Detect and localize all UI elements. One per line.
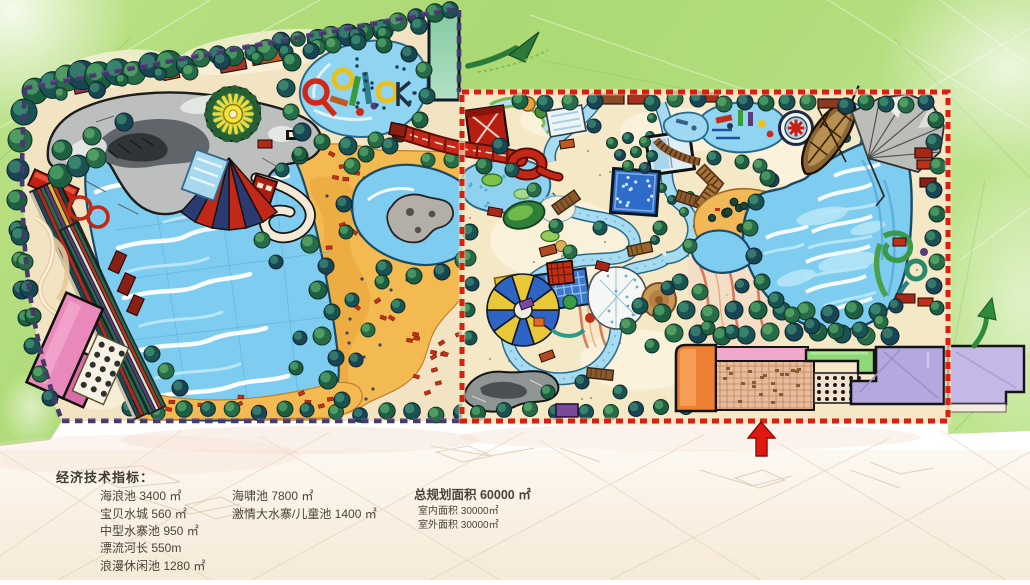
svg-text:漂流河长 550m: 漂流河长 550m [100, 541, 181, 555]
svg-text:浪漫休闲池 1280 ㎡: 浪漫休闲池 1280 ㎡ [100, 558, 205, 573]
svg-text:室外面积 30000㎡: 室外面积 30000㎡ [418, 518, 499, 531]
svg-text:海啸池 7800 ㎡: 海啸池 7800 ㎡ [232, 488, 313, 503]
svg-text:中型水寨池 950 ㎡: 中型水寨池 950 ㎡ [100, 523, 199, 538]
svg-text:总规划面积 60000 ㎡: 总规划面积 60000 ㎡ [414, 487, 531, 502]
svg-text:宝贝水城 560 ㎡: 宝贝水城 560 ㎡ [100, 507, 187, 521]
svg-text:激情大水寨/儿童池 1400 ㎡: 激情大水寨/儿童池 1400 ㎡ [232, 506, 377, 521]
svg-text:海浪池 3400 ㎡: 海浪池 3400 ㎡ [100, 488, 181, 503]
svg-text:经济技术指标：: 经济技术指标： [56, 470, 154, 485]
svg-text:室内面积 30000㎡: 室内面积 30000㎡ [418, 504, 499, 517]
